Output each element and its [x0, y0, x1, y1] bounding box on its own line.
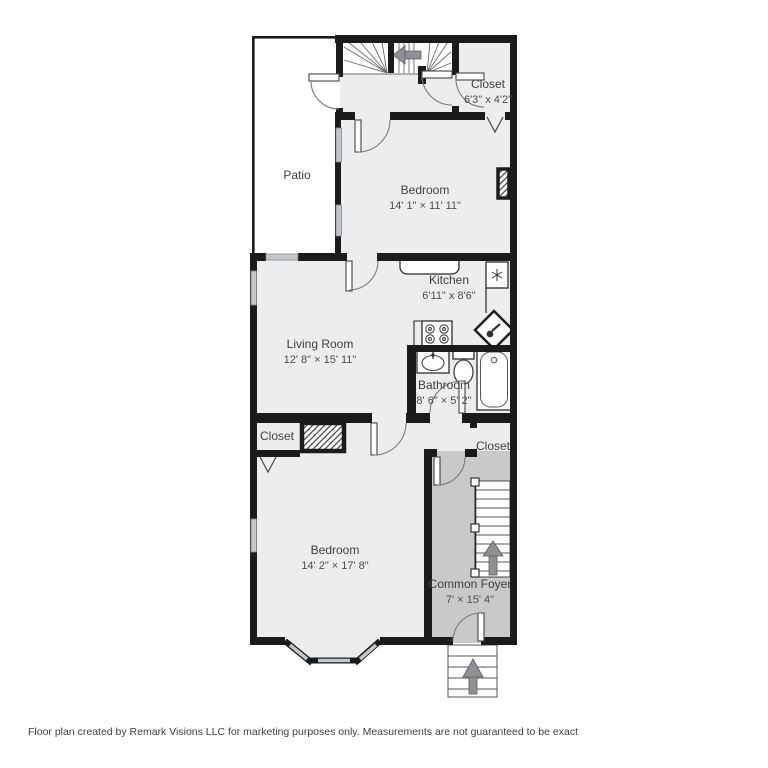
- label-closet-right: Closet: [476, 439, 510, 455]
- window: [251, 271, 257, 305]
- stove-burners-icon: [422, 321, 452, 346]
- patio-floor: [253, 37, 335, 255]
- window: [336, 128, 342, 162]
- label-closet-top: Closet 6'3" x 4'2": [464, 77, 512, 107]
- newel-post: [471, 478, 479, 486]
- floor-plan-page: Patio Closet 6'3" x 4'2" Bedroom 14' 1" …: [0, 0, 768, 768]
- newel-post: [471, 569, 479, 577]
- chimney-hatch: [302, 423, 344, 451]
- window: [251, 519, 257, 552]
- label-living-room: Living Room 12' 8" × 15' 11": [284, 337, 357, 367]
- label-common-foyer: Common Foyer 7' × 15' 4": [429, 577, 512, 607]
- patio-wall: [252, 36, 255, 255]
- disclaimer-text: Floor plan created by Remark Visions LLC…: [28, 726, 578, 738]
- label-patio: Patio: [283, 168, 310, 184]
- kitchen-counter: [400, 259, 459, 274]
- staircase-exterior: [448, 645, 497, 697]
- sink-faucet: [487, 331, 494, 338]
- label-bedroom-bottom: Bedroom 14' 2" × 17' 8": [301, 543, 368, 573]
- newel-post: [471, 524, 479, 532]
- window: [266, 254, 298, 260]
- floor-plan-drawing: [0, 0, 768, 768]
- bathtub-icon: [477, 348, 511, 410]
- window: [336, 205, 342, 236]
- label-bathroom: Bathroom 8' 6" × 5' 2": [416, 378, 471, 408]
- hall-floor: [340, 74, 455, 118]
- staircase-foyer: [471, 478, 510, 577]
- label-bedroom-top: Bedroom 14' 1" × 11' 11": [389, 183, 461, 213]
- patio-wall: [252, 36, 336, 39]
- label-kitchen: Kitchen 6'11" x 8'6": [422, 273, 475, 303]
- label-closet-left: Closet: [260, 429, 294, 445]
- chimney-hatch: [498, 169, 509, 198]
